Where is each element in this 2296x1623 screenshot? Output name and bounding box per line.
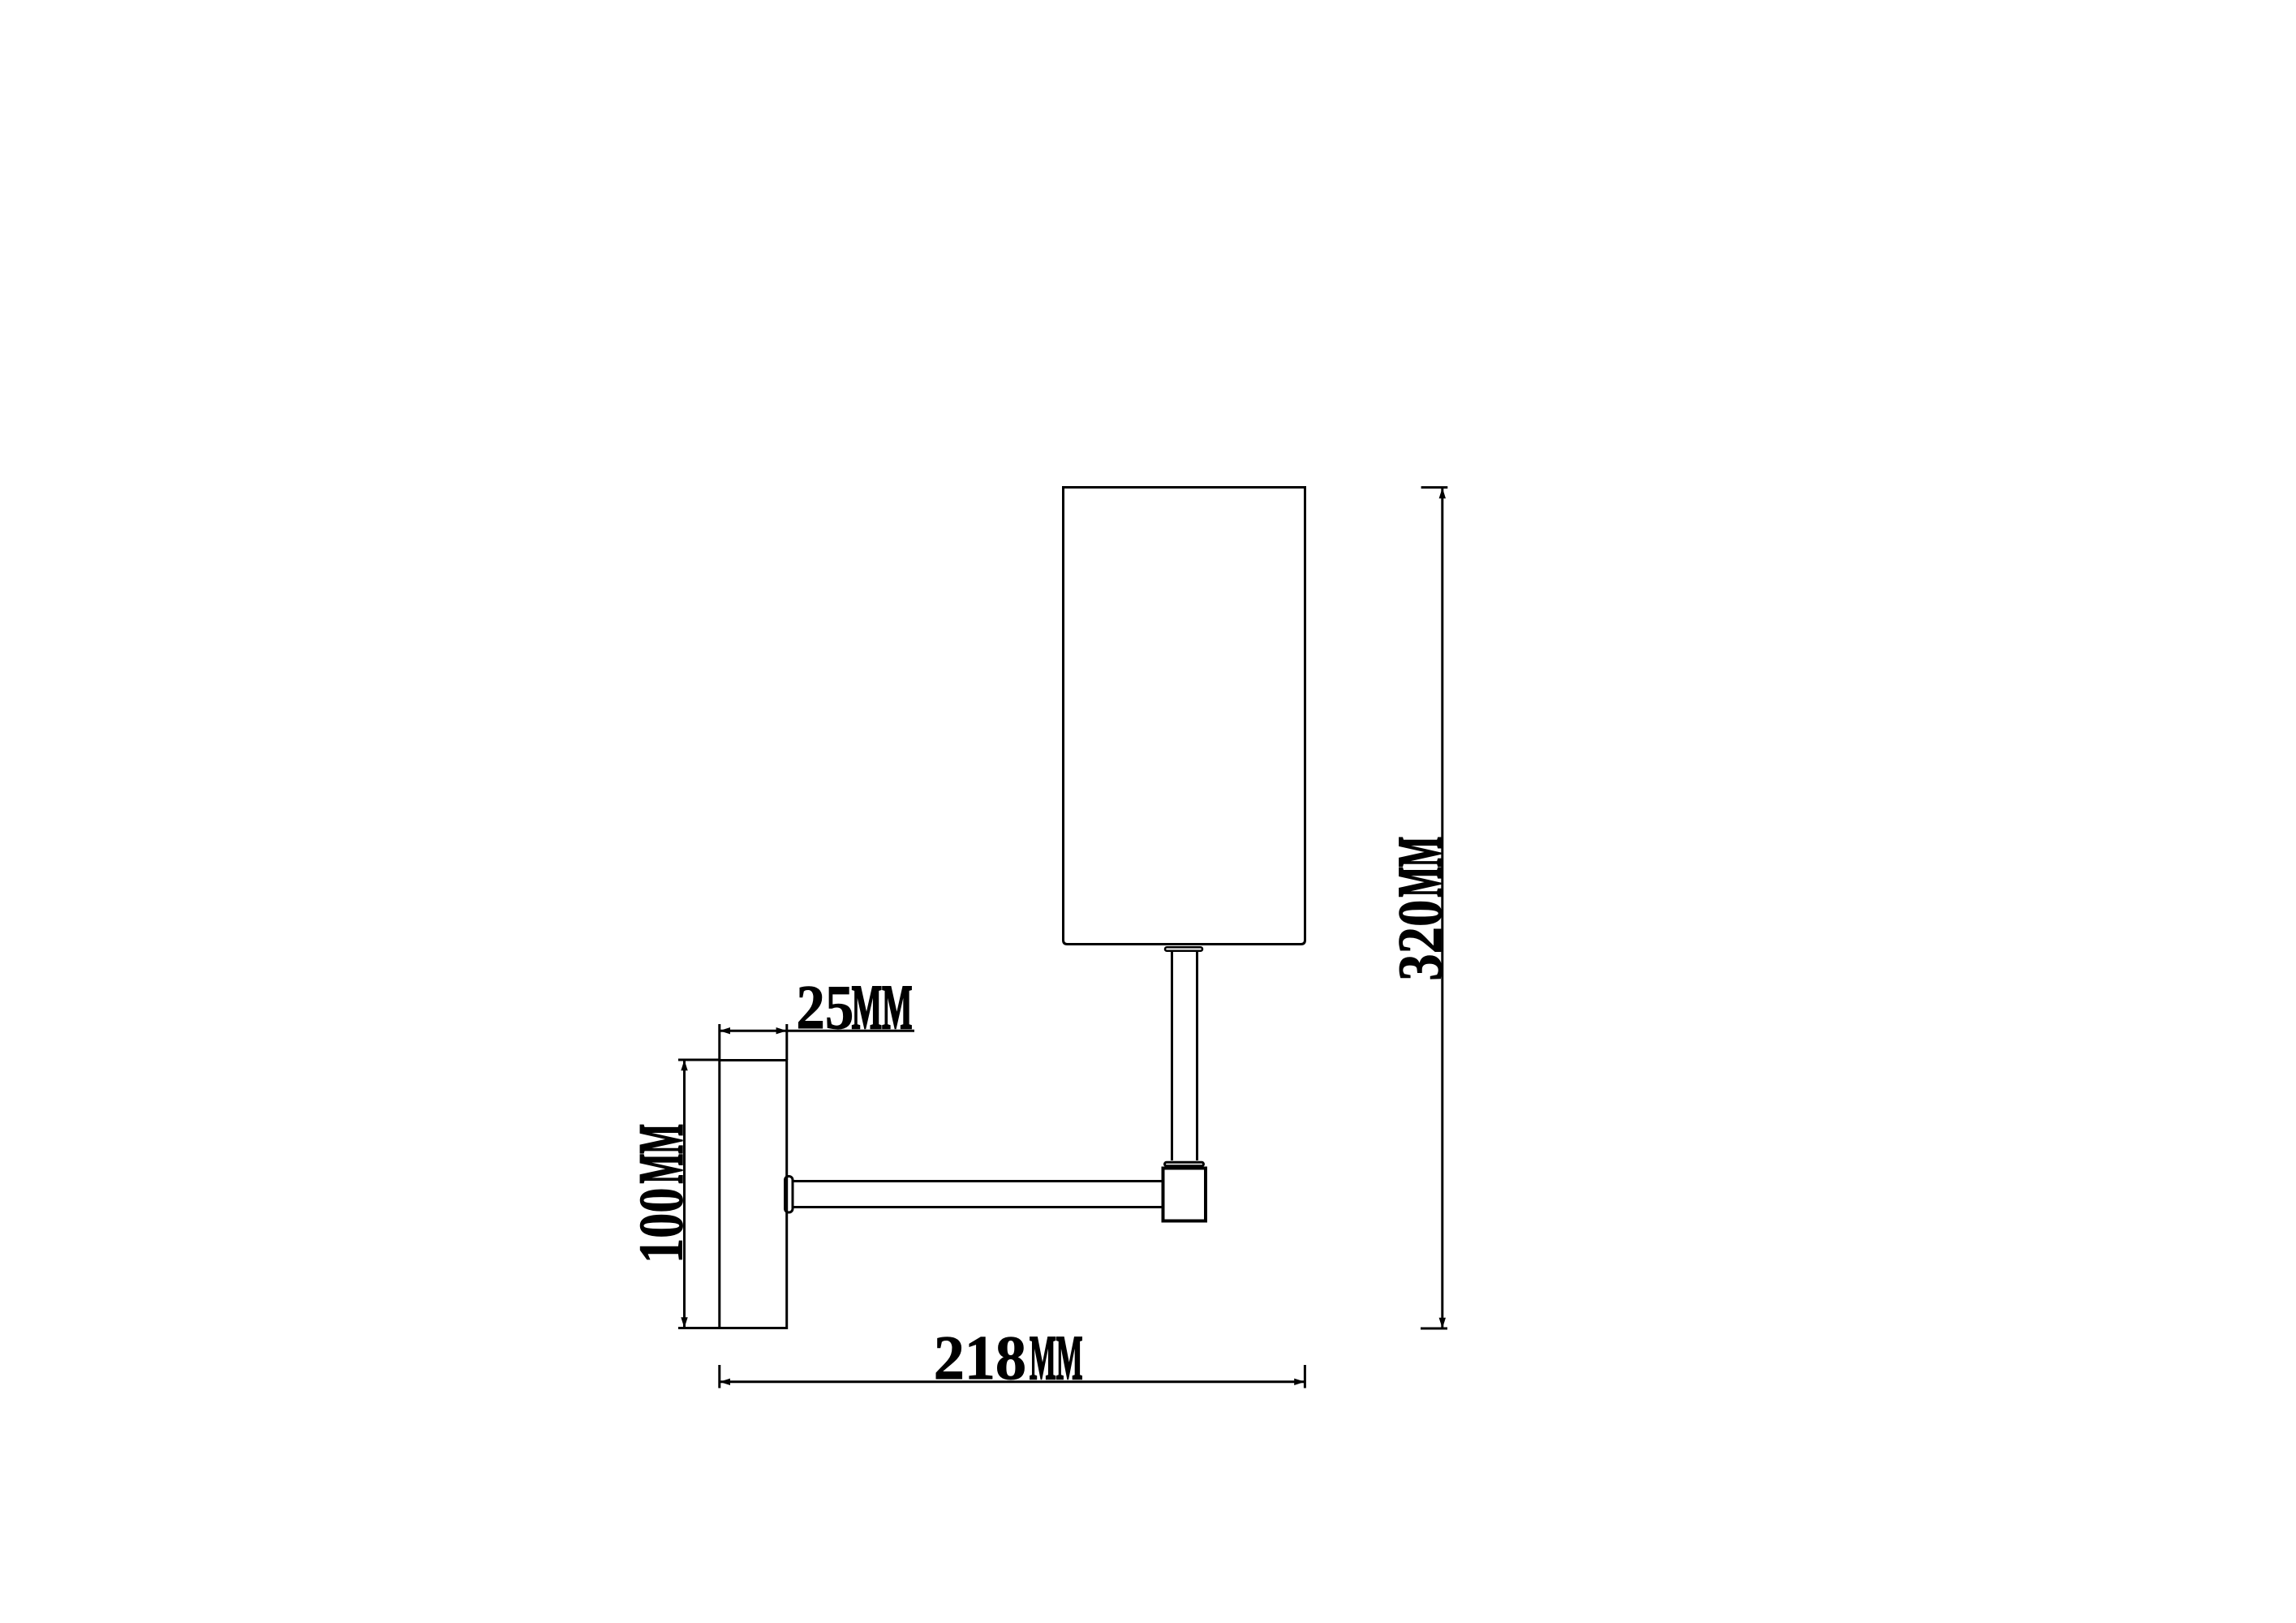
svg-text:218: 218 xyxy=(934,1324,1026,1393)
svg-text:MM: MM xyxy=(1387,837,1455,897)
svg-text:25: 25 xyxy=(796,973,853,1042)
svg-text:MM: MM xyxy=(628,1124,697,1183)
svg-text:MM: MM xyxy=(1030,1324,1082,1393)
svg-text:100: 100 xyxy=(627,1187,696,1264)
svg-text:320: 320 xyxy=(1386,900,1455,981)
svg-text:MM: MM xyxy=(852,973,913,1043)
